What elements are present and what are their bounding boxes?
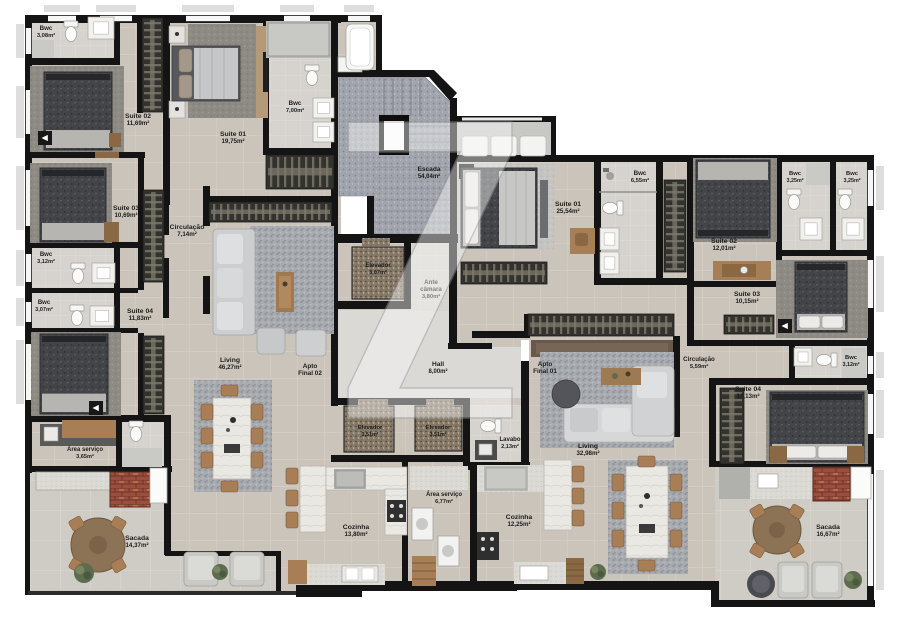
svg-text:Suite 01: Suite 01 [220,131,246,138]
svg-text:10,15m²: 10,15m² [735,298,758,305]
svg-text:Suite 02: Suite 02 [125,113,151,120]
svg-text:13,13m²: 13,13m² [736,393,759,400]
svg-text:8,00m²: 8,00m² [428,368,447,375]
svg-text:Lavabo: Lavabo [499,437,520,443]
svg-text:16,67m²: 16,67m² [816,531,839,538]
svg-text:Cozinha: Cozinha [506,514,533,521]
svg-text:54,04m²: 54,04m² [418,173,440,180]
svg-text:Bwc: Bwc [40,252,53,258]
svg-text:Final 01: Final 01 [533,368,557,375]
svg-text:Bwc: Bwc [845,355,858,361]
svg-text:Bwc: Bwc [634,170,647,177]
svg-text:7,00m²: 7,00m² [286,107,304,114]
svg-text:Bwc: Bwc [38,300,51,306]
svg-text:3,12m²: 3,12m² [37,258,55,265]
svg-text:5,59m²: 5,59m² [690,363,708,370]
svg-text:3,51m²: 3,51m² [429,432,446,438]
svg-text:13,80m²: 13,80m² [344,531,367,538]
svg-text:Área serviço: Área serviço [426,491,462,498]
svg-text:2,13m²: 2,13m² [501,443,519,450]
svg-text:Bwc: Bwc [40,25,53,32]
svg-text:3,12m²: 3,12m² [842,362,859,368]
svg-text:7,14m²: 7,14m² [177,231,197,238]
svg-text:Suite 01: Suite 01 [555,201,581,208]
svg-text:Elevador: Elevador [365,263,391,269]
svg-text:14,37m²: 14,37m² [125,542,148,549]
svg-text:11,69m²: 11,69m² [127,120,150,127]
svg-text:11,83m²: 11,83m² [129,315,152,322]
svg-text:Suite 04: Suite 04 [735,386,761,393]
svg-text:Living: Living [578,443,598,450]
svg-text:12,01m²: 12,01m² [712,245,735,252]
svg-text:10,69m²: 10,69m² [114,212,137,219]
svg-text:3,07m²: 3,07m² [369,269,387,276]
svg-text:Sacada: Sacada [125,535,149,542]
svg-text:Elevador: Elevador [426,425,451,431]
svg-text:3,51m²: 3,51m² [361,432,378,438]
svg-text:Bwc: Bwc [789,171,802,177]
svg-text:Apto: Apto [303,363,318,370]
svg-text:3,07m²: 3,07m² [35,306,53,313]
svg-text:3,25m²: 3,25m² [786,178,803,184]
svg-text:Bwc: Bwc [846,171,859,177]
svg-text:6,55m²: 6,55m² [631,177,649,184]
svg-text:32,98m²: 32,98m² [576,450,599,457]
svg-text:Apto: Apto [538,361,553,368]
svg-text:Suite 02: Suite 02 [711,238,737,245]
svg-text:Cozinha: Cozinha [343,524,370,531]
svg-text:Sacada: Sacada [816,524,840,531]
svg-text:25,54m²: 25,54m² [556,208,579,215]
svg-text:3,65m²: 3,65m² [76,453,94,460]
svg-text:19,75m²: 19,75m² [221,138,244,145]
svg-text:Escada: Escada [417,166,440,173]
svg-text:3,08m²: 3,08m² [37,32,55,39]
svg-text:Circulação: Circulação [683,356,715,363]
svg-text:Suite 04: Suite 04 [127,308,153,315]
svg-text:12,25m²: 12,25m² [507,521,530,528]
svg-text:Área serviço: Área serviço [67,446,103,453]
svg-text:Hall: Hall [432,361,444,368]
svg-text:Elevador: Elevador [358,425,383,431]
svg-text:Final 02: Final 02 [298,370,322,377]
svg-text:Circulação: Circulação [170,224,205,231]
svg-text:Suite 03: Suite 03 [734,291,760,298]
svg-text:Living: Living [220,357,240,364]
svg-text:46,27m²: 46,27m² [218,364,241,371]
svg-text:Bwc: Bwc [289,100,302,107]
svg-text:3,25m²: 3,25m² [843,178,860,184]
svg-text:6,77m²: 6,77m² [435,498,453,505]
svg-text:Suite 03: Suite 03 [113,205,139,212]
